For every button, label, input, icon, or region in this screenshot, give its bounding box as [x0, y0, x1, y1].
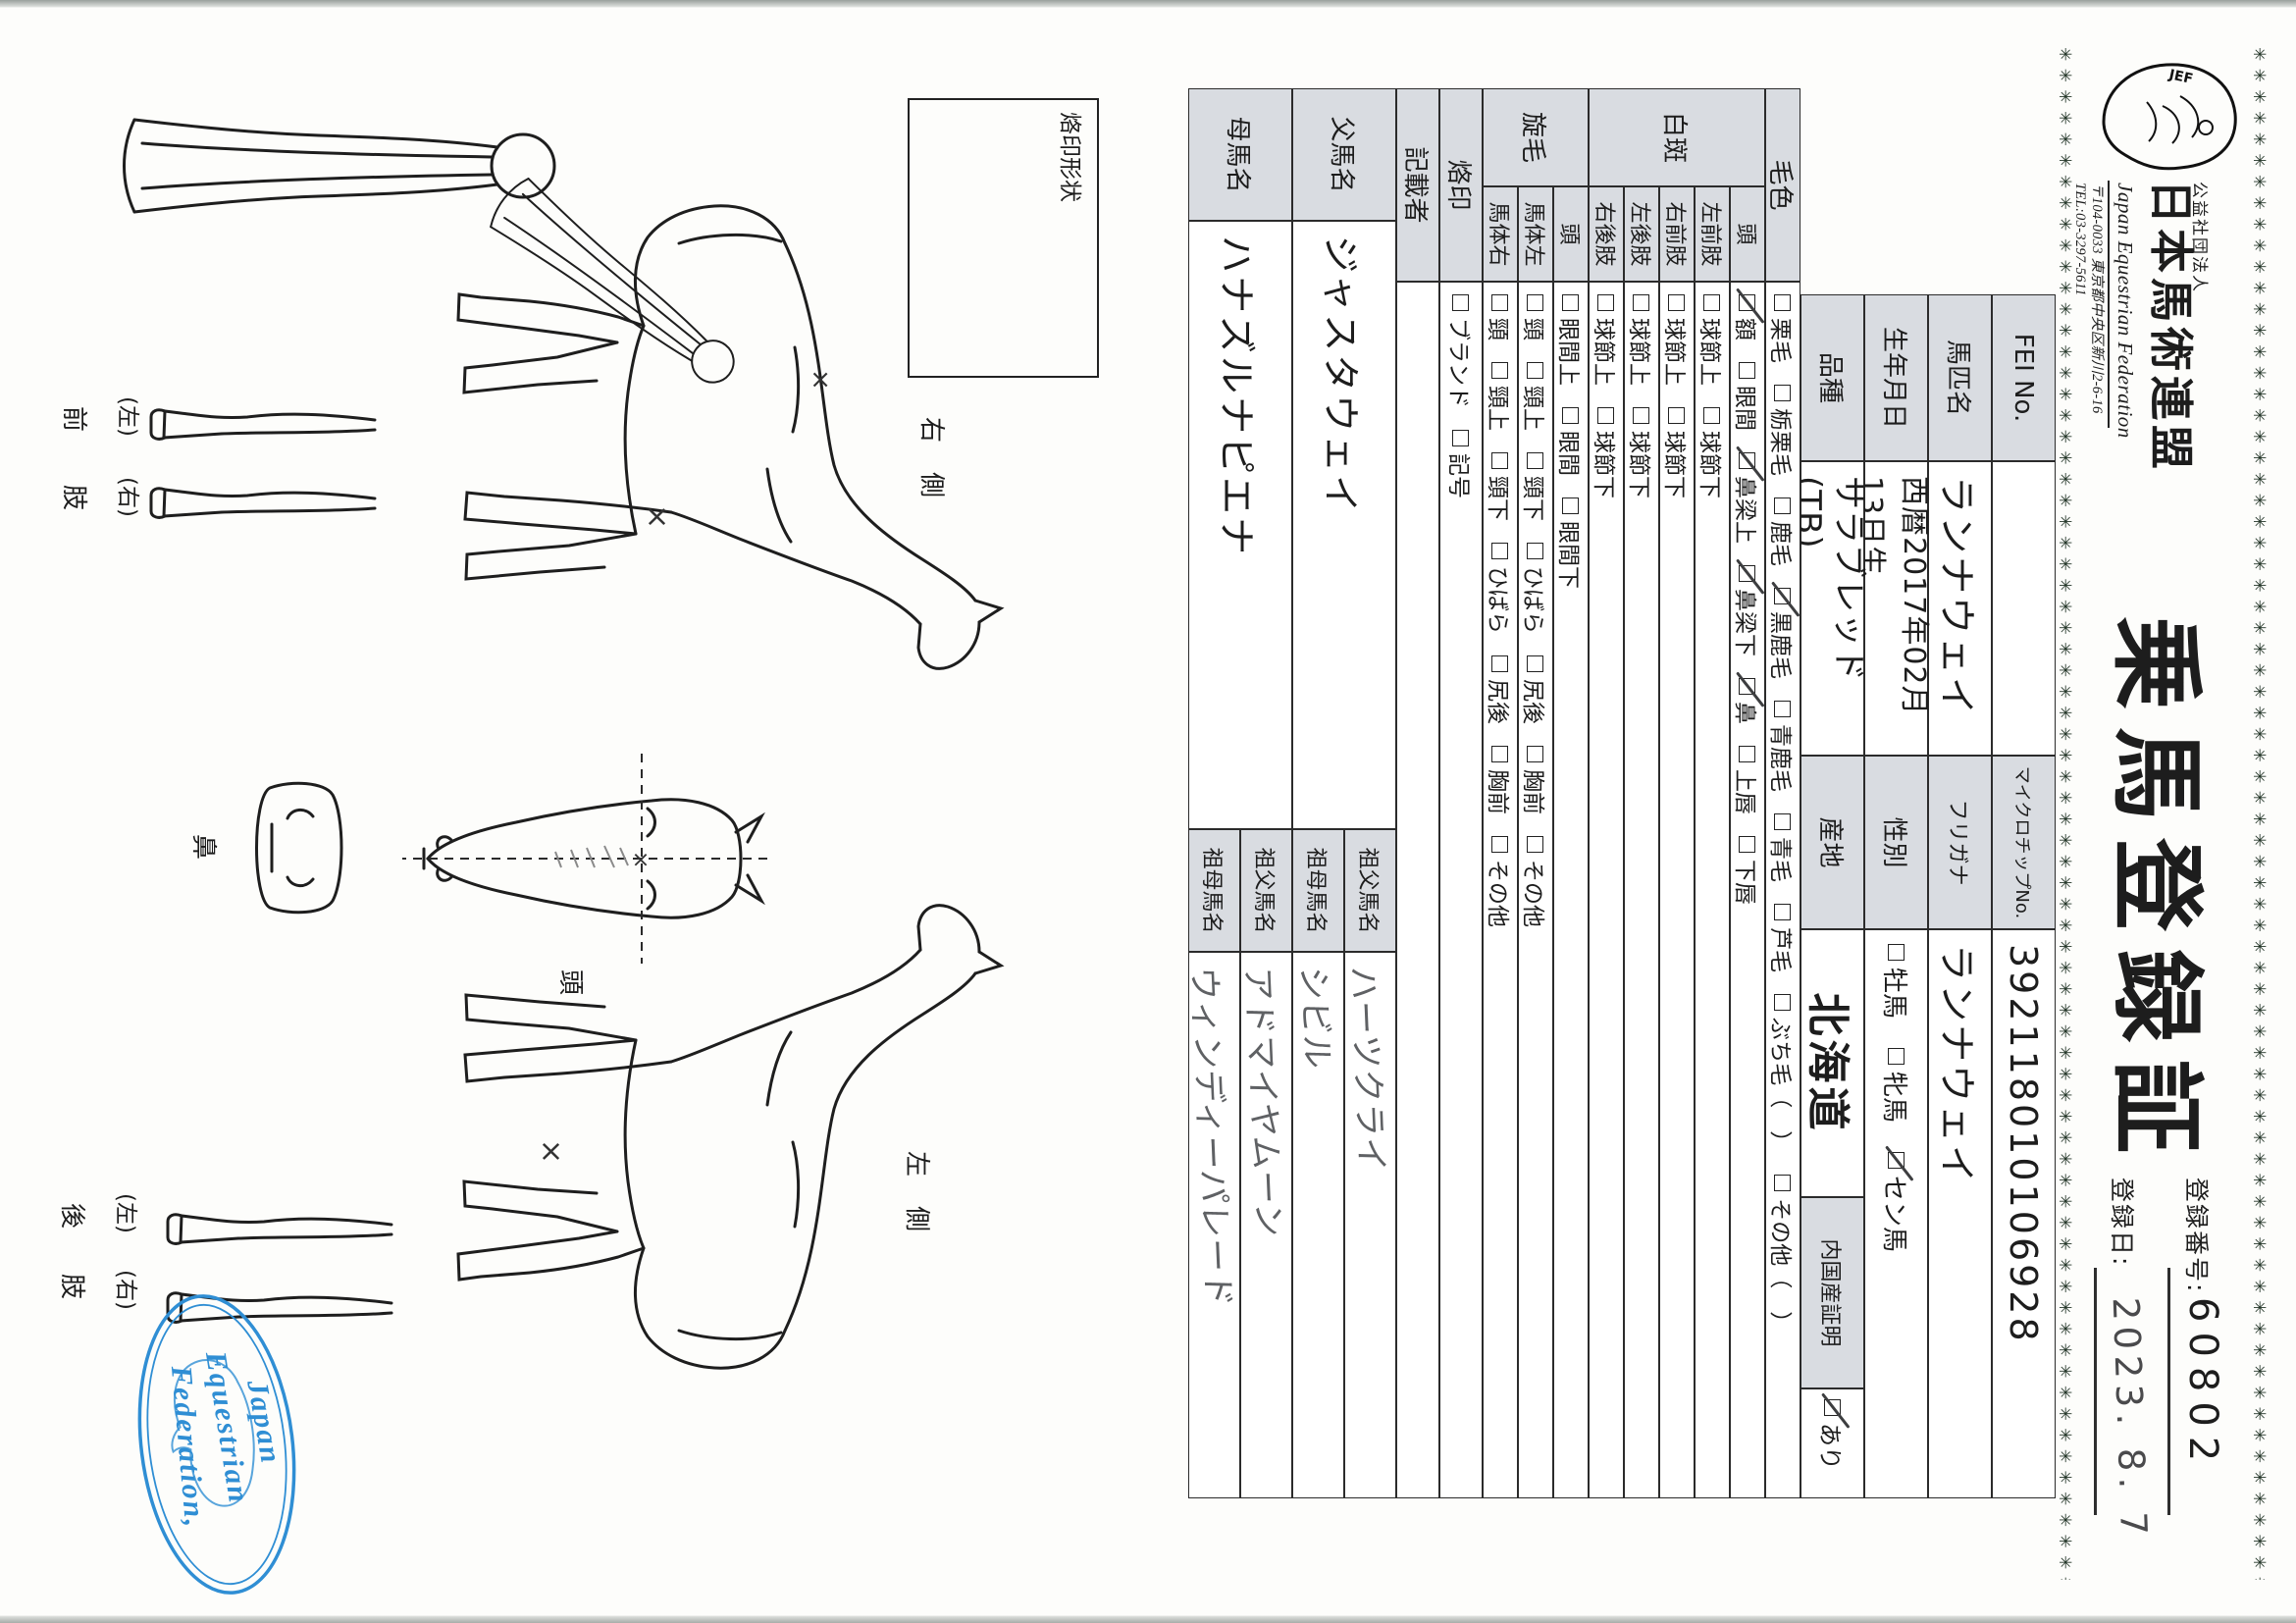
- brand-shape-label: 烙印形状: [1056, 112, 1089, 202]
- org-tel: TEL:03-3297-5611: [2071, 183, 2089, 296]
- org-name: 日本馬術連盟: [2148, 180, 2194, 474]
- coat-option: 鹿毛: [1766, 497, 1800, 566]
- head-marking-option: 鼻梁上: [1731, 452, 1764, 544]
- checkbox: [1775, 294, 1792, 311]
- senmou-row-label: 馬体左: [1518, 186, 1553, 282]
- sex-option: 牡馬: [1878, 944, 1914, 1019]
- muzzle-diagram: [240, 773, 350, 922]
- checkbox: [1888, 1048, 1905, 1065]
- leg-marking-option: 球節上: [1696, 294, 1729, 386]
- reg-date-label: 登録日:: [2106, 1178, 2141, 1267]
- coat-option: その他（ ）: [1766, 1175, 1800, 1334]
- checkbox: [1740, 294, 1756, 311]
- whorl-option: ひばら: [1519, 543, 1552, 634]
- fei-value: [1992, 461, 2056, 756]
- checkbox: [1669, 407, 1686, 424]
- whorl-option: 眼間下: [1554, 497, 1588, 589]
- sire-gf-label: 祖父馬名: [1344, 829, 1396, 952]
- reg-no-underline: [2167, 1268, 2170, 1515]
- scan-edge-right: [0, 1615, 2296, 1623]
- checkbox: [1775, 994, 1792, 1011]
- checkbox: [1740, 362, 1756, 379]
- checkbox: [1528, 836, 1544, 853]
- head-marking-option: 鼻: [1731, 678, 1764, 724]
- checkbox: [1775, 385, 1792, 401]
- checkbox: [1888, 944, 1905, 961]
- checkbox: [1740, 452, 1756, 469]
- senmou-group-label: 旋毛: [1483, 88, 1589, 186]
- checkbox: [1775, 904, 1792, 920]
- jef-logo: JEF: [2092, 57, 2241, 177]
- foreleg-left-label: (左): [114, 396, 147, 437]
- origin-value: 北海道: [1800, 929, 1864, 1197]
- breed-value: サラブレッド(TB): [1800, 461, 1864, 756]
- sire-value: ジャスタウェイ: [1292, 221, 1396, 829]
- logo-horse-lines: [2147, 96, 2198, 143]
- sire-gm-value: シビル: [1292, 952, 1344, 1498]
- forelegs-label-2: 肢: [58, 485, 94, 512]
- checkbox: [1528, 655, 1544, 672]
- senmou-row-options: 頸 頸上 頸下 ひばら 尻後 胸前 その他: [1483, 294, 1518, 927]
- microchip-label: マイクロチップNo.: [1992, 756, 2056, 929]
- leg-row-options: 球節上 球節下: [1589, 294, 1624, 498]
- whorl-option: ひばら: [1484, 543, 1517, 634]
- furigana-value: ランナウェイ: [1928, 929, 1992, 1498]
- org-address: 〒104-0033 東京都中央区新川2-6-16: [2088, 183, 2106, 414]
- reg-date-value: 2023. 8. 7: [2105, 1296, 2156, 1542]
- dam-gm-value: ウィンディーパレード: [1188, 952, 1240, 1498]
- checkbox: [1453, 294, 1470, 311]
- checkbox: [1563, 294, 1580, 311]
- hindleg-left-label: (左): [112, 1193, 145, 1233]
- hakuhan-head-options: 額 眼間 鼻梁上 鼻梁下 鼻 上唇 下唇: [1730, 294, 1765, 905]
- whorl-x-mark: ×: [806, 369, 835, 391]
- header-rule: [2108, 181, 2110, 428]
- checkbox: [1492, 543, 1509, 559]
- whorl-option: 眼間上: [1554, 294, 1588, 386]
- checkbox: [1704, 294, 1721, 311]
- breed-label: 品種: [1800, 294, 1864, 461]
- whorl-x-mark: ×: [534, 1139, 568, 1164]
- leg-marking-option: 球節上: [1590, 294, 1623, 386]
- head-marking-option: 眼間: [1731, 362, 1764, 431]
- checkbox: [1740, 746, 1756, 762]
- leg-row-label: 左前肢: [1695, 186, 1730, 282]
- reg-no-value: 60802: [2180, 1297, 2225, 1471]
- whorl-option: 頸: [1519, 294, 1552, 340]
- birth-label: 生年月日: [1864, 294, 1928, 461]
- head-marking-option: 鼻梁下: [1731, 565, 1764, 656]
- checkbox: [1528, 746, 1544, 762]
- horse-name-label: 馬匹名: [1928, 294, 1992, 461]
- whorl-x-mark: ×: [628, 851, 652, 868]
- checkbox: [1775, 701, 1792, 717]
- checkbox: [1492, 294, 1509, 311]
- checkbox: [1634, 294, 1650, 311]
- leg-marking-option: 球節下: [1696, 407, 1729, 498]
- sex-options-cell: 牡馬 牝馬 セン馬: [1864, 929, 1928, 1498]
- checkbox: [1528, 294, 1544, 311]
- origin-label: 産地: [1800, 756, 1864, 929]
- microchip-value: 392118010106928: [1992, 929, 2056, 1498]
- coat-option: ぶち毛（ ）: [1766, 994, 1800, 1153]
- checkbox: [1740, 836, 1756, 853]
- sex-option: セン馬: [1878, 1152, 1914, 1252]
- checkbox: [1492, 836, 1509, 853]
- senmou-row-options: 頸 頸上 頸下 ひばら 尻後 胸前 その他: [1518, 294, 1553, 927]
- sire-label: 父馬名: [1292, 88, 1396, 221]
- certificate-page: ✳ ✳ ✳ ✳ ✳ ✳ ✳ ✳ ✳ ✳ ✳ ✳ ✳ ✳ ✳ ✳ ✳ ✳ ✳ ✳ …: [0, 0, 2296, 1623]
- leg-row-options: 球節上 球節下: [1659, 294, 1695, 498]
- checkbox: [1740, 565, 1756, 582]
- checkbox: [1634, 407, 1650, 424]
- head-marking-option: 上唇: [1731, 746, 1764, 814]
- checkbox: [1775, 497, 1792, 514]
- nose-diagram-label: 鼻: [187, 834, 224, 862]
- leg-marking-option: 球節上: [1625, 294, 1658, 386]
- fei-label: FEI No.: [1992, 294, 2056, 461]
- whorl-option: 胸前: [1484, 746, 1517, 814]
- whorl-option: 尻後: [1519, 655, 1552, 724]
- recorder-value: [1396, 282, 1439, 1498]
- leg-row-options: 球節上 球節下: [1624, 294, 1659, 498]
- whorl-option: 尻後: [1484, 655, 1517, 724]
- checkbox: [1824, 1399, 1841, 1416]
- hindlegs-label-2: 肢: [56, 1274, 92, 1301]
- sex-label: 性別: [1864, 756, 1928, 929]
- asterisk-border-top: ✳ ✳ ✳ ✳ ✳ ✳ ✳ ✳ ✳ ✳ ✳ ✳ ✳ ✳ ✳ ✳ ✳ ✳ ✳ ✳ …: [2249, 47, 2269, 1580]
- dam-gm-label: 祖母馬名: [1188, 829, 1240, 952]
- coat-option: 栗毛: [1766, 294, 1800, 363]
- brand-option: 記号: [1444, 430, 1478, 498]
- domestic-label: 内国産証明: [1800, 1197, 1864, 1388]
- furigana-label: フリガナ: [1928, 756, 1992, 929]
- head-front-diagram: ×: [402, 754, 767, 964]
- senmou-row-label: 頭: [1553, 186, 1589, 282]
- whorl-x-mark: ×: [640, 504, 674, 529]
- org-name-en: Japan Equestrian Federation: [2113, 183, 2137, 439]
- brand-options: ブランド 記号: [1439, 294, 1483, 498]
- coat-label: 毛色: [1765, 88, 1800, 282]
- logo-rider-head: [2199, 121, 2213, 134]
- checkbox: [1598, 407, 1615, 424]
- dam-label: 母馬名: [1188, 88, 1292, 221]
- head-marking-option: 額: [1731, 294, 1764, 340]
- checkbox: [1563, 407, 1580, 424]
- domestic-option-cell: あり: [1800, 1388, 1864, 1498]
- checkbox: [1563, 497, 1580, 514]
- checkbox: [1492, 746, 1509, 762]
- reg-no-label: 登録番号:: [2180, 1178, 2216, 1293]
- hakuhan-head-label: 頭: [1730, 186, 1765, 282]
- coat-option: 青毛: [1766, 813, 1800, 882]
- whorl-option: 胸前: [1519, 746, 1552, 814]
- whorl-option: 頸下: [1484, 452, 1517, 521]
- recorder-label: 記載者: [1396, 88, 1439, 282]
- checkbox: [1492, 452, 1509, 469]
- checkbox: [1669, 294, 1686, 311]
- forelegs-diagram: [147, 391, 381, 552]
- hindlegs-label-1: 後: [56, 1203, 92, 1230]
- leg-marking-option: 球節上: [1660, 294, 1694, 386]
- checkbox: [1775, 813, 1792, 830]
- checkbox: [1453, 430, 1470, 446]
- whorl-option: 頸上: [1484, 362, 1517, 431]
- sire-gm-label: 祖母馬名: [1292, 829, 1344, 952]
- scan-edge-left: [0, 0, 2296, 8]
- leg-marking-option: 球節下: [1660, 407, 1694, 498]
- leg-row-label: 左後肢: [1624, 186, 1659, 282]
- leg-marking-option: 球節下: [1625, 407, 1658, 498]
- whorl-option: その他: [1519, 836, 1552, 927]
- sex-option: 牝馬: [1878, 1048, 1914, 1123]
- dam-value: ハナズルナピエナ: [1188, 221, 1292, 829]
- leg-row-label: 右後肢: [1589, 186, 1624, 282]
- coat-options: 栗毛 栃栗毛 鹿毛 黒鹿毛 青鹿毛 青毛 芦毛 ぶち毛（ ） その他（ ）: [1765, 294, 1800, 1334]
- checkbox: [1528, 362, 1544, 379]
- logo-jef-text: JEF: [2166, 67, 2194, 87]
- senmou-row-label: 馬体右: [1483, 186, 1518, 282]
- checkbox: [1528, 543, 1544, 559]
- head-diagram-label: 頭: [554, 969, 591, 997]
- coat-option: 芦毛: [1766, 904, 1800, 972]
- forelegs-label-1: 前: [58, 406, 94, 434]
- reg-date-underline: [2094, 1268, 2097, 1515]
- whorl-option: 眼間: [1554, 407, 1588, 476]
- domestic-option: あり: [1815, 1399, 1850, 1470]
- leg-row-options: 球節上 球節下: [1695, 294, 1730, 498]
- coat-option: 青鹿毛: [1766, 701, 1800, 792]
- whorl-option: その他: [1484, 836, 1517, 927]
- senmou-row-options: 眼間上 眼間 眼間下: [1553, 294, 1589, 589]
- whorl-option: 頸下: [1519, 452, 1552, 521]
- document-title: 乗馬登録証: [2097, 616, 2231, 1171]
- pencil-blaze-marks: [555, 846, 628, 867]
- checkbox: [1528, 452, 1544, 469]
- coat-option: 栃栗毛: [1766, 385, 1800, 476]
- checkbox: [1740, 678, 1756, 695]
- hakuhan-group-label: 白斑: [1589, 88, 1765, 186]
- whorl-option: 頸上: [1519, 362, 1552, 431]
- leg-marking-option: 球節下: [1590, 407, 1623, 498]
- brand-option: ブランド: [1444, 294, 1478, 408]
- dam-gf-value: アドマイヤムーン: [1240, 952, 1292, 1498]
- head-marking-option: 下唇: [1731, 836, 1764, 905]
- foreleg-right-label: (右): [114, 477, 147, 517]
- leg-row-label: 右前肢: [1659, 186, 1695, 282]
- checkbox: [1492, 362, 1509, 379]
- checkbox: [1775, 1175, 1792, 1191]
- dam-gf-label: 祖父馬名: [1240, 829, 1292, 952]
- checkbox: [1492, 655, 1509, 672]
- checkbox: [1888, 1152, 1905, 1169]
- scanned-certificate: ✳ ✳ ✳ ✳ ✳ ✳ ✳ ✳ ✳ ✳ ✳ ✳ ✳ ✳ ✳ ✳ ✳ ✳ ✳ ✳ …: [0, 0, 2296, 1623]
- sire-gf-value: ハーツクライ: [1344, 952, 1396, 1498]
- brand-label: 烙印: [1439, 88, 1483, 282]
- checkbox: [1775, 588, 1792, 604]
- coat-option: 黒鹿毛: [1766, 588, 1800, 679]
- checkbox: [1598, 294, 1615, 311]
- checkbox: [1704, 407, 1721, 424]
- whorl-option: 頸: [1484, 294, 1517, 340]
